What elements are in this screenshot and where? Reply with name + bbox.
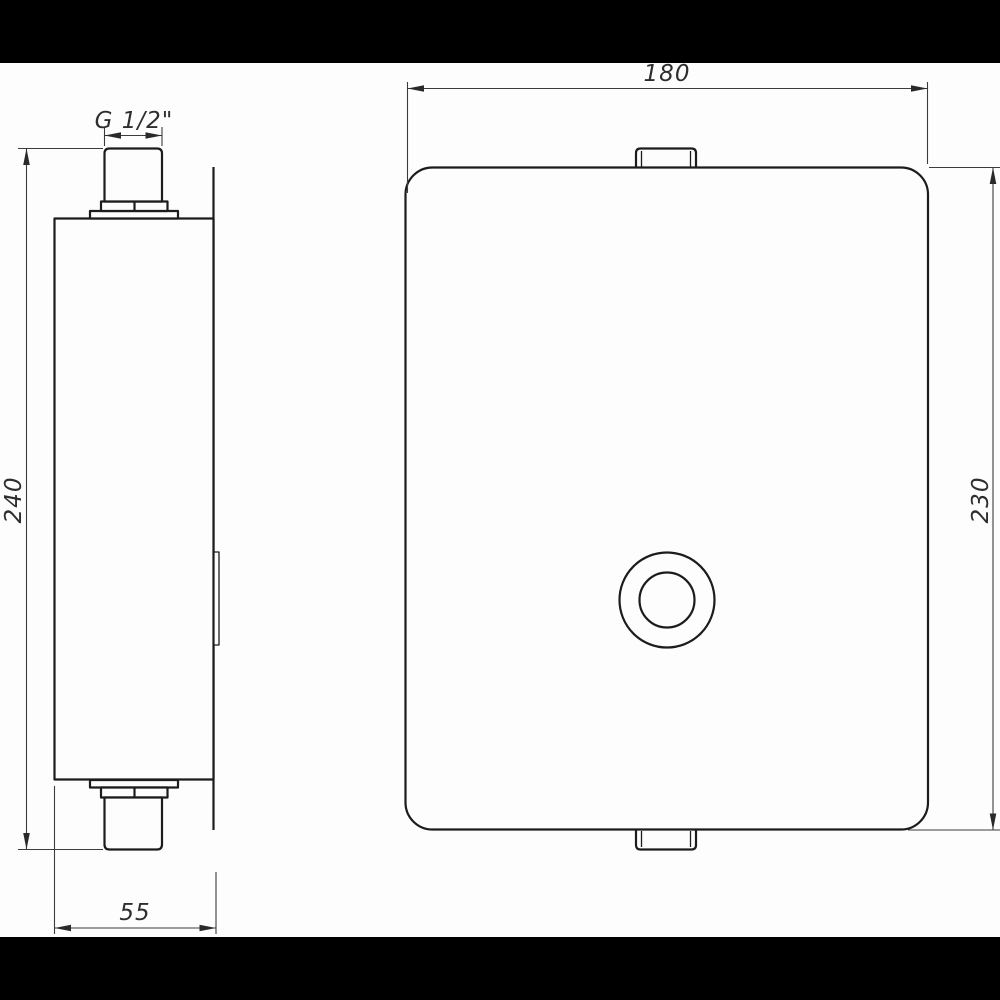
dim-label-front-height: 230 [968,477,994,524]
side-view [55,149,220,850]
dim-230-arrow-up [990,168,997,185]
dim-230-arrow-down [990,814,997,831]
front-view [406,149,929,850]
dim-label-side-depth: 55 [119,900,150,926]
bottom-fitting-thread [105,798,163,850]
technical-drawing-canvas: G 1/2" 240 55 [0,0,1000,1000]
dim-240-arrow-down [23,833,30,850]
dim-55-arrow-left [55,925,72,932]
front-top-tab [636,149,696,169]
letterbox-bar-bottom [0,937,1000,1000]
front-bottom-tab [636,829,696,850]
front-panel [406,168,929,830]
dim-label-thread-size: G 1/2" [95,108,174,134]
top-fitting-thread [105,149,163,202]
dim-thread-size: G 1/2" [95,108,174,146]
dim-label-side-height: 240 [1,477,27,524]
top-fitting-flange [90,211,178,219]
dim-240-arrow-up [23,149,30,166]
dim-55-arrow-right [200,925,217,932]
dim-label-front-width: 180 [644,61,691,87]
dim-180-arrow-right [911,85,928,92]
drawing-sheet: G 1/2" 240 55 [0,0,1000,1000]
bottom-fitting-flange [90,780,178,788]
side-body [55,219,214,780]
dim-180-arrow-left [408,85,425,92]
letterbox-bar-top [0,0,1000,63]
